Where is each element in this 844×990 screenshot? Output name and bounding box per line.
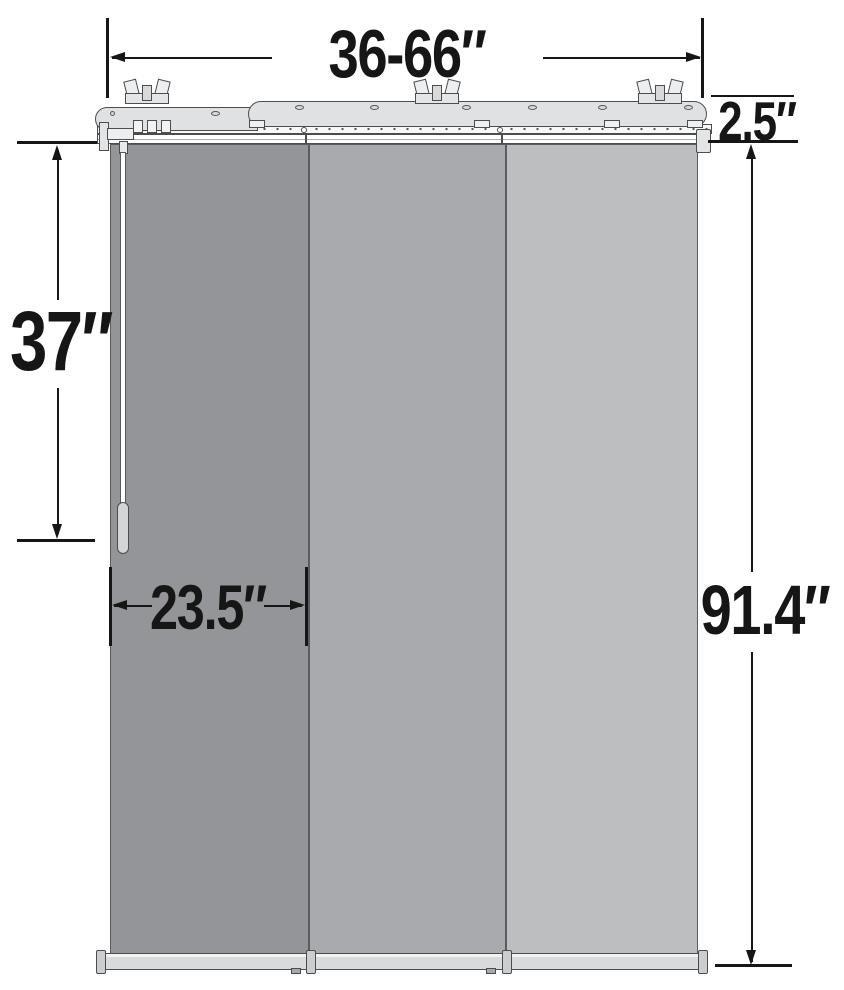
bottom-rail-bump — [486, 968, 496, 974]
track-screw — [497, 127, 503, 133]
hold-down-clip — [687, 120, 703, 128]
mounting-bracket-3 — [636, 78, 684, 104]
carrier-clip — [161, 120, 171, 133]
arrow-right-icon — [290, 600, 305, 610]
dim-tick — [17, 141, 97, 144]
dim-line — [57, 150, 59, 300]
panel-width-label: 23.5″ — [150, 577, 266, 640]
bracket-latch — [655, 85, 665, 101]
carrier-clip — [133, 120, 143, 133]
wand-handle — [117, 502, 129, 554]
tube-slot — [370, 105, 379, 110]
arrow-right-icon — [686, 52, 701, 62]
dim-tick — [106, 18, 109, 98]
tube-slot — [598, 105, 607, 110]
bracket-latch — [142, 85, 152, 101]
track-screw — [301, 127, 307, 133]
tube-slot — [462, 105, 471, 110]
dim-tick — [17, 539, 95, 542]
arrow-up-icon — [52, 145, 62, 160]
dim-line — [112, 57, 272, 59]
dim-tick — [701, 18, 704, 98]
bottom-rail — [98, 953, 708, 970]
bottom-rail-cap — [698, 950, 708, 974]
carrier-joint — [501, 134, 503, 144]
panel-3 — [506, 144, 698, 956]
carrier-rail — [97, 134, 710, 144]
wand-length-label: 37″ — [10, 299, 112, 383]
arrow-left-icon — [112, 600, 127, 610]
panel-1 — [110, 144, 309, 956]
dim-line — [543, 57, 700, 59]
mounting-bracket-1 — [123, 78, 171, 104]
arrow-down-icon — [52, 524, 62, 539]
tube-slot — [211, 111, 220, 116]
hold-down-clip — [474, 120, 490, 128]
headrail-depth-label: 2.5″ — [718, 94, 796, 149]
hold-down-clip — [604, 120, 620, 128]
tube-slot — [684, 105, 693, 110]
arrow-up-icon — [746, 144, 756, 159]
tube-slot — [110, 111, 115, 116]
bottom-rail-cap — [96, 950, 106, 974]
tube-slot — [295, 105, 304, 110]
dim-line — [751, 152, 753, 572]
tube-slot — [528, 105, 537, 110]
carrier-joint — [305, 134, 307, 144]
hold-down-clip — [249, 120, 265, 128]
width-range-label: 36-66″ — [328, 20, 485, 88]
dim-tick — [305, 567, 308, 646]
carrier-rail-groove — [98, 139, 709, 140]
panel-blind-dimension-diagram: 36-66″ 2.5″ 91.4″ 37″ 23.5″ — [0, 0, 844, 990]
bottom-rail-cap — [306, 950, 316, 974]
bottom-rail-bump — [291, 968, 301, 974]
dim-line — [751, 652, 753, 962]
product-height-label: 91.4″ — [701, 575, 830, 645]
arrow-down-icon — [746, 950, 756, 965]
dim-tick — [715, 964, 792, 967]
wand-hanger-arm — [107, 128, 134, 140]
tilt-wand — [120, 152, 126, 504]
bottom-rail-cap — [502, 950, 512, 974]
panel-2 — [309, 144, 506, 956]
dim-line — [57, 388, 59, 528]
arrow-left-icon — [110, 52, 125, 62]
carrier-clip — [147, 120, 157, 133]
